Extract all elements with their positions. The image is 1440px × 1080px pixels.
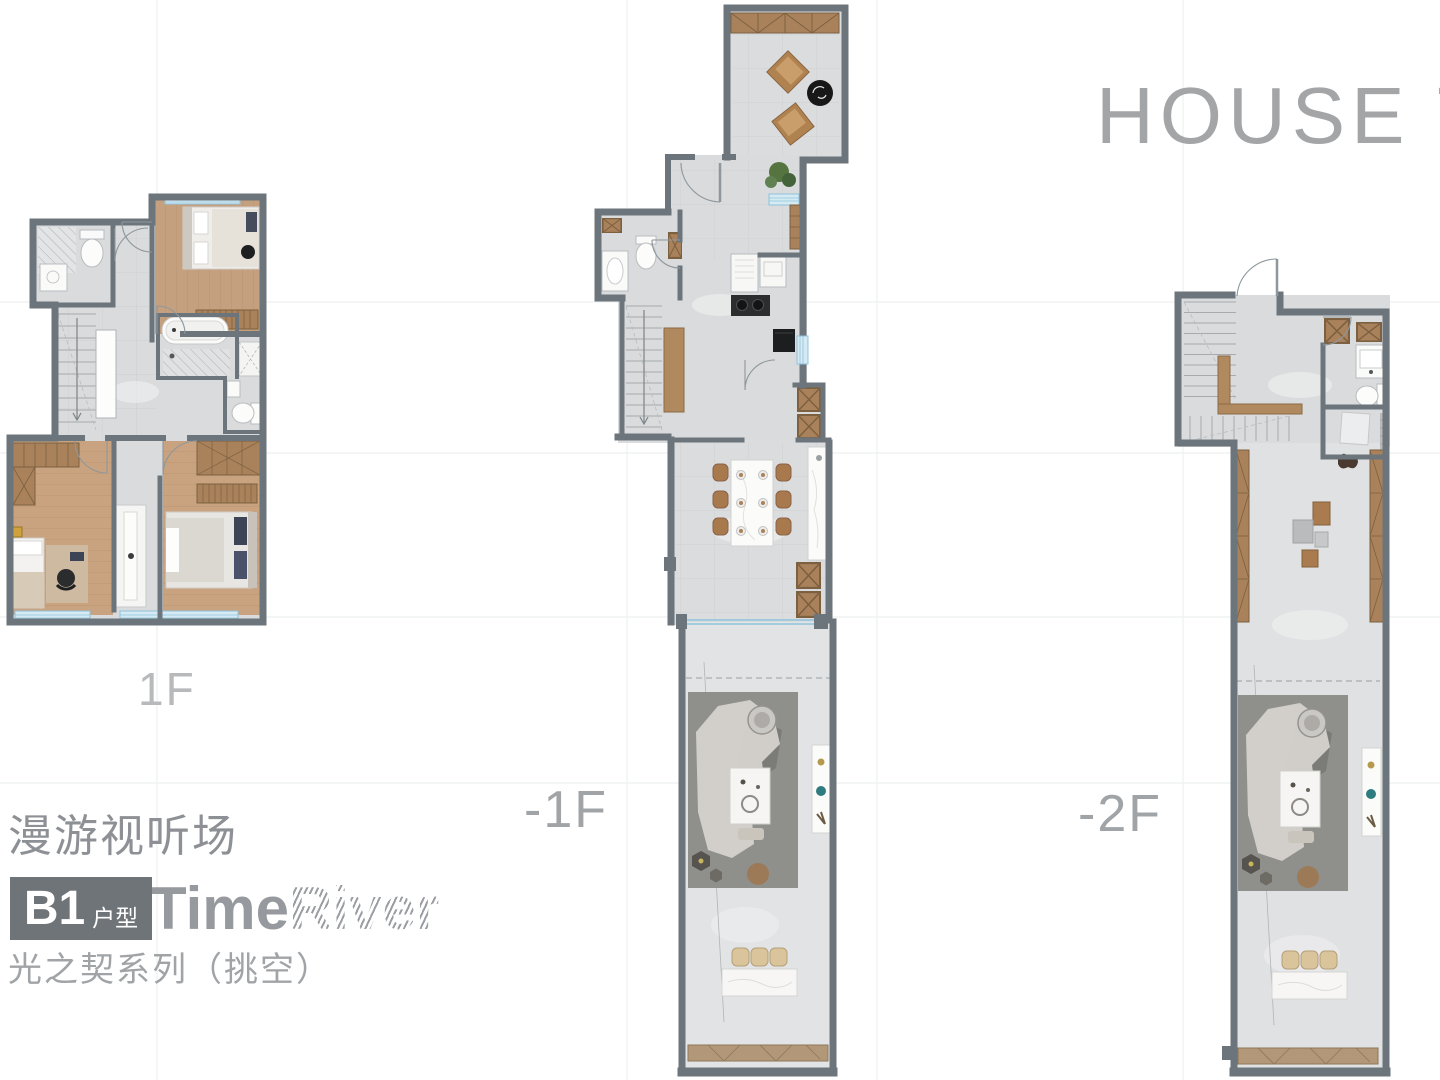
floorplan-1f (10, 195, 263, 622)
brand-row: B1 户型 Time River (10, 877, 439, 940)
unit-type-badge: B1 户型 (10, 877, 152, 940)
logo-part-river: River (289, 877, 439, 940)
floorplan-minus2f (1178, 259, 1390, 1074)
floor-label-minus1f: -1F (524, 780, 608, 840)
floorplan-minus1f (598, 8, 845, 1074)
poster: HOUSE T 1F -1F -2F 漫游视听场 B1 户型 Time Rive… (0, 0, 1440, 1080)
logo-part-time: Time (150, 877, 289, 940)
timeriver-logo: Time River (150, 877, 439, 940)
floor-label-1f: 1F (138, 662, 196, 716)
page-title: HOUSE T (1096, 70, 1440, 162)
unit-code: B1 (24, 885, 85, 933)
series-name: 光之契系列（挑空） (8, 942, 332, 991)
floor-label-minus2f: -2F (1078, 784, 1162, 844)
tagline: 漫游视听场 (8, 800, 238, 864)
unit-suffix: 户型 (92, 899, 138, 933)
